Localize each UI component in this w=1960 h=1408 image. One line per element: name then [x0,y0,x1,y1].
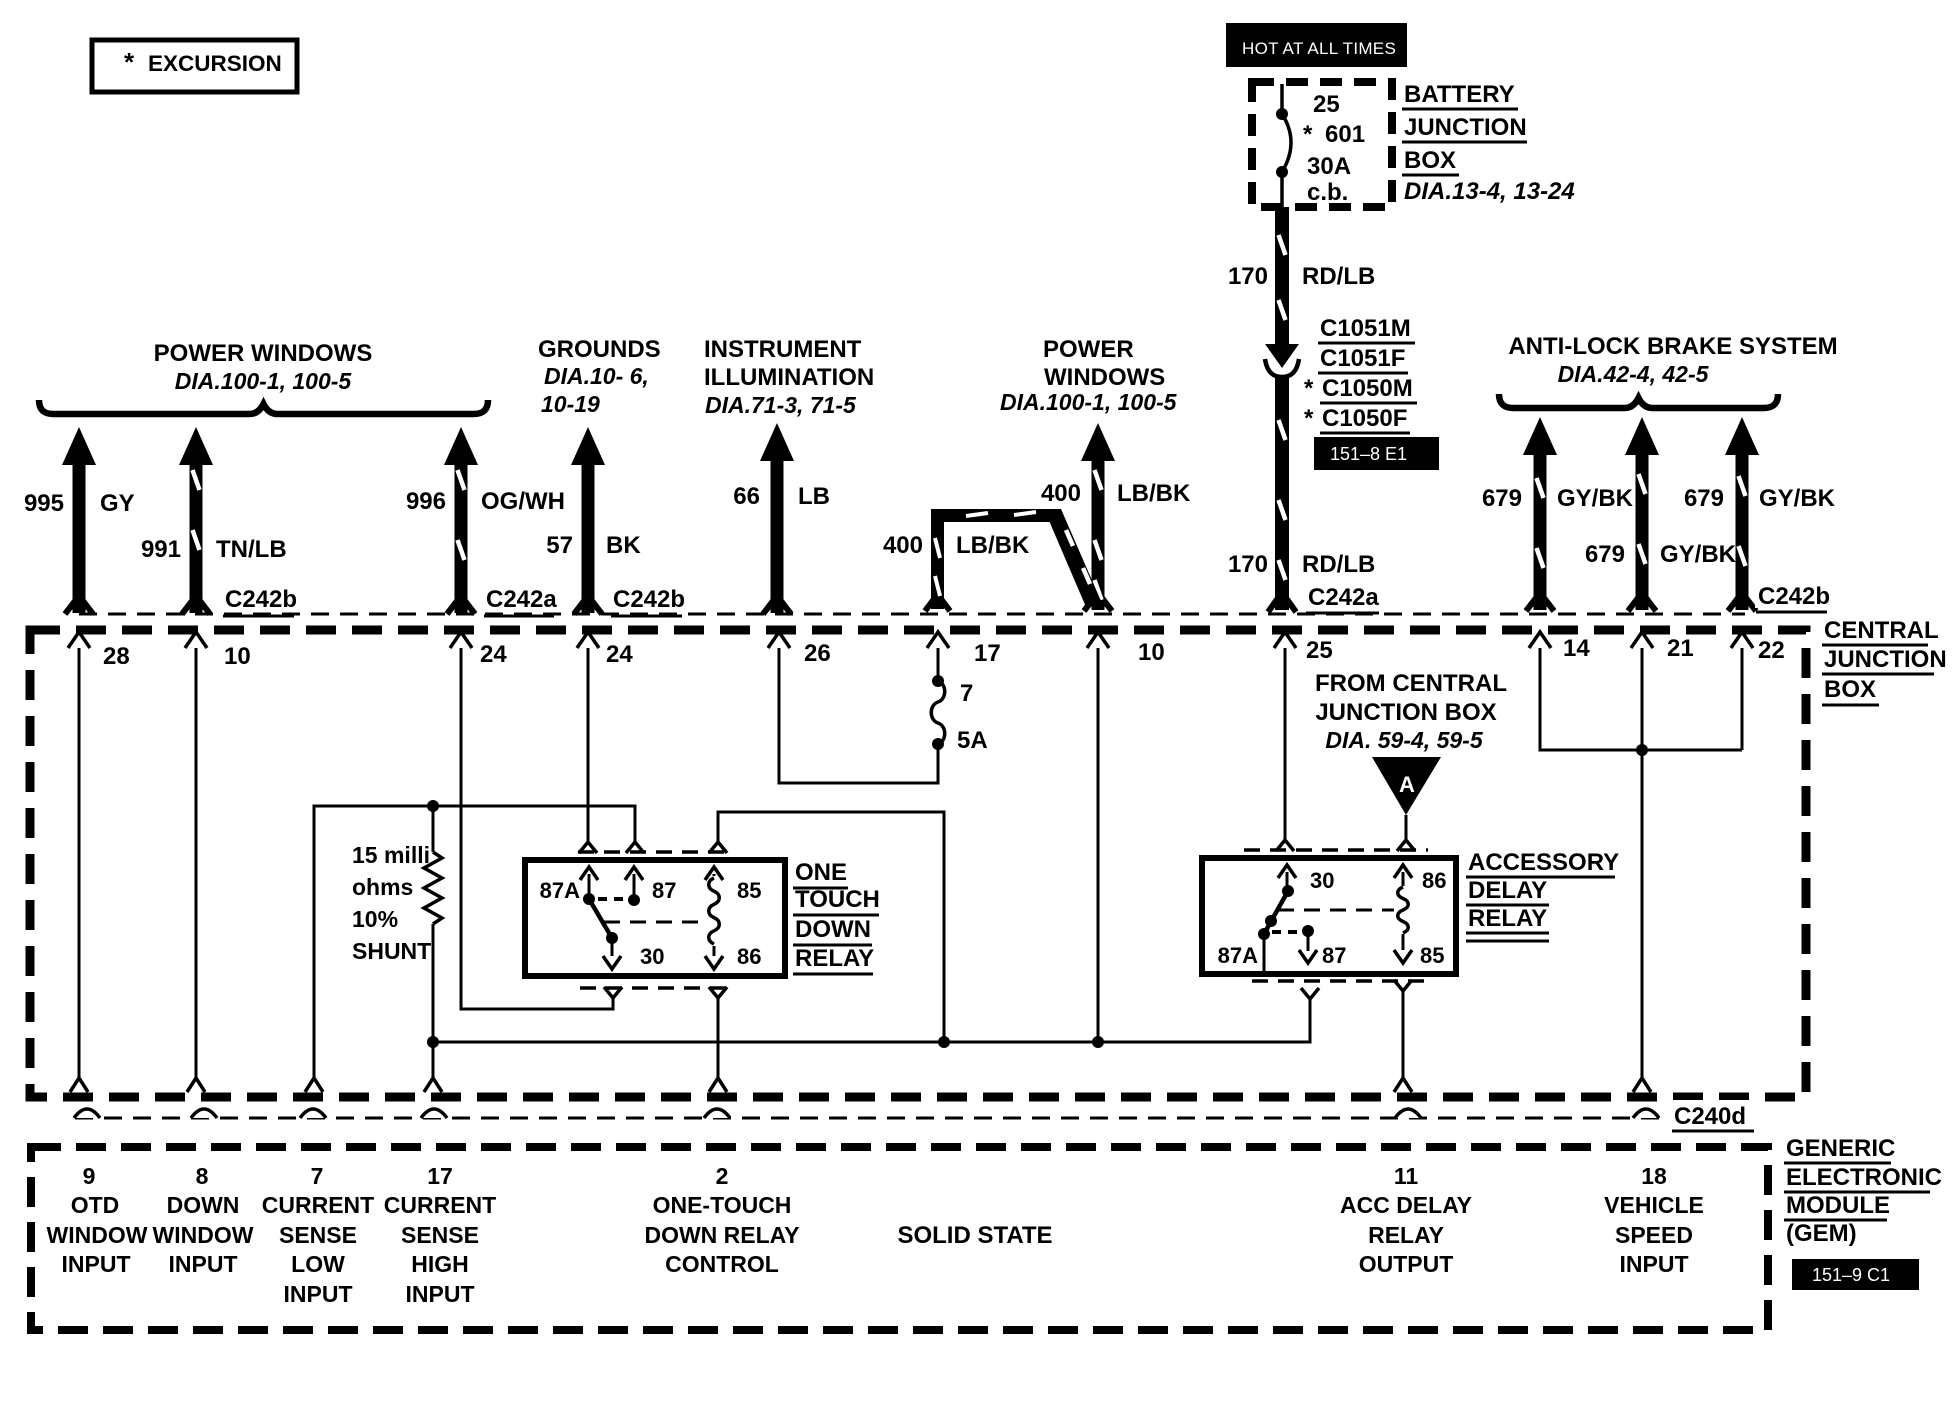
svg-text:RELAY: RELAY [795,945,874,972]
svg-text:SENSE: SENSE [279,1222,357,1248]
svg-text:ONE-TOUCH: ONE-TOUCH [653,1192,792,1218]
svg-text:BOX: BOX [1824,676,1876,703]
svg-text:991: 991 [141,536,181,563]
svg-text:7: 7 [960,680,973,707]
svg-text:RELAY: RELAY [1468,905,1547,932]
svg-text:30: 30 [1310,868,1334,893]
svg-text:LB/BK: LB/BK [956,532,1030,559]
svg-text:ACCESSORY: ACCESSORY [1468,849,1619,876]
svg-text:TN/LB: TN/LB [216,536,287,563]
svg-text:C242a: C242a [486,586,557,613]
svg-text:VEHICLE: VEHICLE [1604,1192,1704,1218]
svg-text:*: * [1303,121,1313,148]
svg-text:ONE: ONE [795,859,847,886]
svg-text:30: 30 [640,944,664,969]
svg-text:26: 26 [804,640,831,667]
svg-text:DIA.13-4, 13-24: DIA.13-4, 13-24 [1404,178,1575,205]
svg-text:INPUT: INPUT [406,1281,475,1307]
svg-text:170: 170 [1228,551,1268,578]
svg-text:RD/LB: RD/LB [1302,551,1375,578]
svg-text:C1050M: C1050M [1322,375,1413,402]
svg-text:A: A [1399,772,1415,797]
svg-text:INPUT: INPUT [284,1281,353,1307]
svg-text:RD/LB: RD/LB [1302,263,1375,290]
svg-text:INPUT: INPUT [62,1251,131,1277]
svg-text:WINDOW: WINDOW [153,1222,254,1248]
svg-text:LB/BK: LB/BK [1117,480,1191,507]
svg-text:EXCURSION: EXCURSION [148,51,282,76]
svg-text:c.b.: c.b. [1307,179,1348,206]
svg-text:MODULE: MODULE [1786,1192,1890,1219]
svg-text:JUNCTION: JUNCTION [1824,646,1947,673]
svg-text:24: 24 [480,641,507,668]
svg-text:CURRENT: CURRENT [262,1192,374,1218]
svg-text:ACC DELAY: ACC DELAY [1340,1192,1472,1218]
svg-text:GROUNDS: GROUNDS [538,336,661,363]
svg-text:GY: GY [100,490,135,517]
svg-text:GY/BK: GY/BK [1660,541,1737,568]
svg-text:5A: 5A [957,727,988,754]
svg-text:400: 400 [883,532,923,559]
svg-text:87: 87 [1322,943,1346,968]
svg-text:C242b: C242b [225,586,297,613]
svg-text:9: 9 [83,1163,96,1189]
svg-text:LB: LB [798,483,830,510]
svg-text:*: * [1304,375,1314,402]
svg-text:ILLUMINATION: ILLUMINATION [704,364,874,391]
svg-text:DIA.10- 6,: DIA.10- 6, [544,363,649,389]
svg-text:SHUNT: SHUNT [352,938,431,964]
svg-text:(GEM): (GEM) [1786,1220,1857,1247]
svg-text:TOUCH: TOUCH [795,886,880,913]
svg-text:10-19: 10-19 [541,391,600,417]
svg-text:10%: 10% [352,906,398,932]
svg-text:DOWN: DOWN [795,916,871,943]
svg-text:18: 18 [1641,1163,1667,1189]
svg-text:21: 21 [1667,635,1694,662]
svg-text:10: 10 [224,643,251,670]
svg-text:25: 25 [1313,91,1340,118]
svg-text:*: * [124,47,135,77]
svg-text:BOX: BOX [1404,147,1456,174]
svg-text:87A: 87A [540,878,580,903]
svg-text:28: 28 [103,643,130,670]
svg-text:DELAY: DELAY [1468,877,1547,904]
svg-text:400: 400 [1041,480,1081,507]
svg-text:OUTPUT: OUTPUT [1359,1251,1454,1277]
svg-text:ELECTRONIC: ELECTRONIC [1786,1164,1942,1191]
svg-text:85: 85 [737,878,761,903]
svg-text:WINDOWS: WINDOWS [1044,364,1165,391]
svg-text:JUNCTION BOX: JUNCTION BOX [1315,699,1496,726]
svg-text:SENSE: SENSE [401,1222,479,1248]
svg-text:INPUT: INPUT [1620,1251,1689,1277]
svg-text:DIA.42-4, 42-5: DIA.42-4, 42-5 [1558,361,1710,387]
svg-text:CENTRAL: CENTRAL [1824,617,1939,644]
svg-text:17: 17 [427,1163,453,1189]
svg-text:OG/WH: OG/WH [481,488,565,515]
svg-text:C1051F: C1051F [1320,345,1405,372]
svg-text:RELAY: RELAY [1368,1222,1444,1248]
svg-text:C242b: C242b [613,586,685,613]
svg-text:C1051M: C1051M [1320,315,1411,342]
svg-text:DIA.100-1, 100-5: DIA.100-1, 100-5 [175,368,353,394]
svg-text:25: 25 [1306,637,1333,664]
svg-text:15 milli: 15 milli [352,842,430,868]
svg-text:GY/BK: GY/BK [1557,485,1634,512]
svg-text:57: 57 [546,532,573,559]
svg-text:151–8 E1: 151–8 E1 [1330,444,1407,464]
svg-text:995: 995 [24,490,64,517]
svg-text:87: 87 [652,878,676,903]
svg-text:BATTERY: BATTERY [1404,81,1515,108]
svg-text:ANTI-LOCK BRAKE SYSTEM: ANTI-LOCK BRAKE SYSTEM [1508,333,1837,360]
svg-text:SOLID STATE: SOLID STATE [897,1222,1052,1249]
svg-text:7: 7 [311,1163,324,1189]
svg-text:HOT AT ALL TIMES: HOT AT ALL TIMES [1242,39,1396,58]
svg-text:87A: 87A [1218,943,1258,968]
svg-text:C242b: C242b [1758,583,1830,610]
svg-text:CONTROL: CONTROL [665,1251,779,1277]
svg-text:JUNCTION: JUNCTION [1404,114,1527,141]
svg-text:10: 10 [1138,639,1165,666]
svg-text:24: 24 [606,641,633,668]
svg-text:GENERIC: GENERIC [1786,1135,1895,1162]
svg-text:2: 2 [716,1163,729,1189]
svg-text:GY/BK: GY/BK [1759,485,1836,512]
svg-text:22: 22 [1758,637,1785,664]
svg-text:*: * [1304,405,1314,432]
svg-text:POWER: POWER [1043,336,1134,363]
svg-text:INPUT: INPUT [169,1251,238,1277]
svg-text:30A: 30A [1307,153,1351,180]
svg-text:INSTRUMENT: INSTRUMENT [704,336,862,363]
svg-text:LOW: LOW [291,1251,345,1277]
svg-text:WINDOW: WINDOW [47,1222,148,1248]
svg-text:OTD: OTD [71,1192,120,1218]
svg-text:679: 679 [1684,485,1724,512]
svg-text:CURRENT: CURRENT [384,1192,496,1218]
svg-text:DIA. 59-4, 59-5: DIA. 59-4, 59-5 [1325,727,1483,753]
svg-text:SPEED: SPEED [1615,1222,1693,1248]
svg-text:POWER WINDOWS: POWER WINDOWS [154,340,373,367]
svg-text:8: 8 [196,1163,209,1189]
svg-text:BK: BK [606,532,641,559]
svg-text:DOWN RELAY: DOWN RELAY [644,1222,799,1248]
svg-text:DIA.71-3, 71-5: DIA.71-3, 71-5 [705,392,857,418]
svg-text:151–9 C1: 151–9 C1 [1812,1265,1890,1285]
svg-text:DIA.100-1, 100-5: DIA.100-1, 100-5 [1000,389,1178,415]
svg-text:ohms: ohms [352,874,413,900]
svg-text:86: 86 [1422,868,1446,893]
svg-text:FROM CENTRAL: FROM CENTRAL [1315,670,1507,697]
svg-text:C242a: C242a [1308,584,1379,611]
svg-text:85: 85 [1420,943,1444,968]
svg-text:996: 996 [406,488,446,515]
svg-text:11: 11 [1394,1163,1419,1189]
svg-text:86: 86 [737,944,761,969]
svg-text:679: 679 [1585,541,1625,568]
svg-text:17: 17 [974,640,1001,667]
svg-text:679: 679 [1482,485,1522,512]
svg-text:C240d: C240d [1674,1103,1746,1130]
svg-text:601: 601 [1325,121,1365,148]
svg-text:170: 170 [1228,263,1268,290]
svg-text:C1050F: C1050F [1322,405,1407,432]
svg-text:14: 14 [1563,635,1590,662]
svg-text:66: 66 [733,483,760,510]
svg-text:HIGH: HIGH [411,1251,469,1277]
svg-text:DOWN: DOWN [167,1192,240,1218]
